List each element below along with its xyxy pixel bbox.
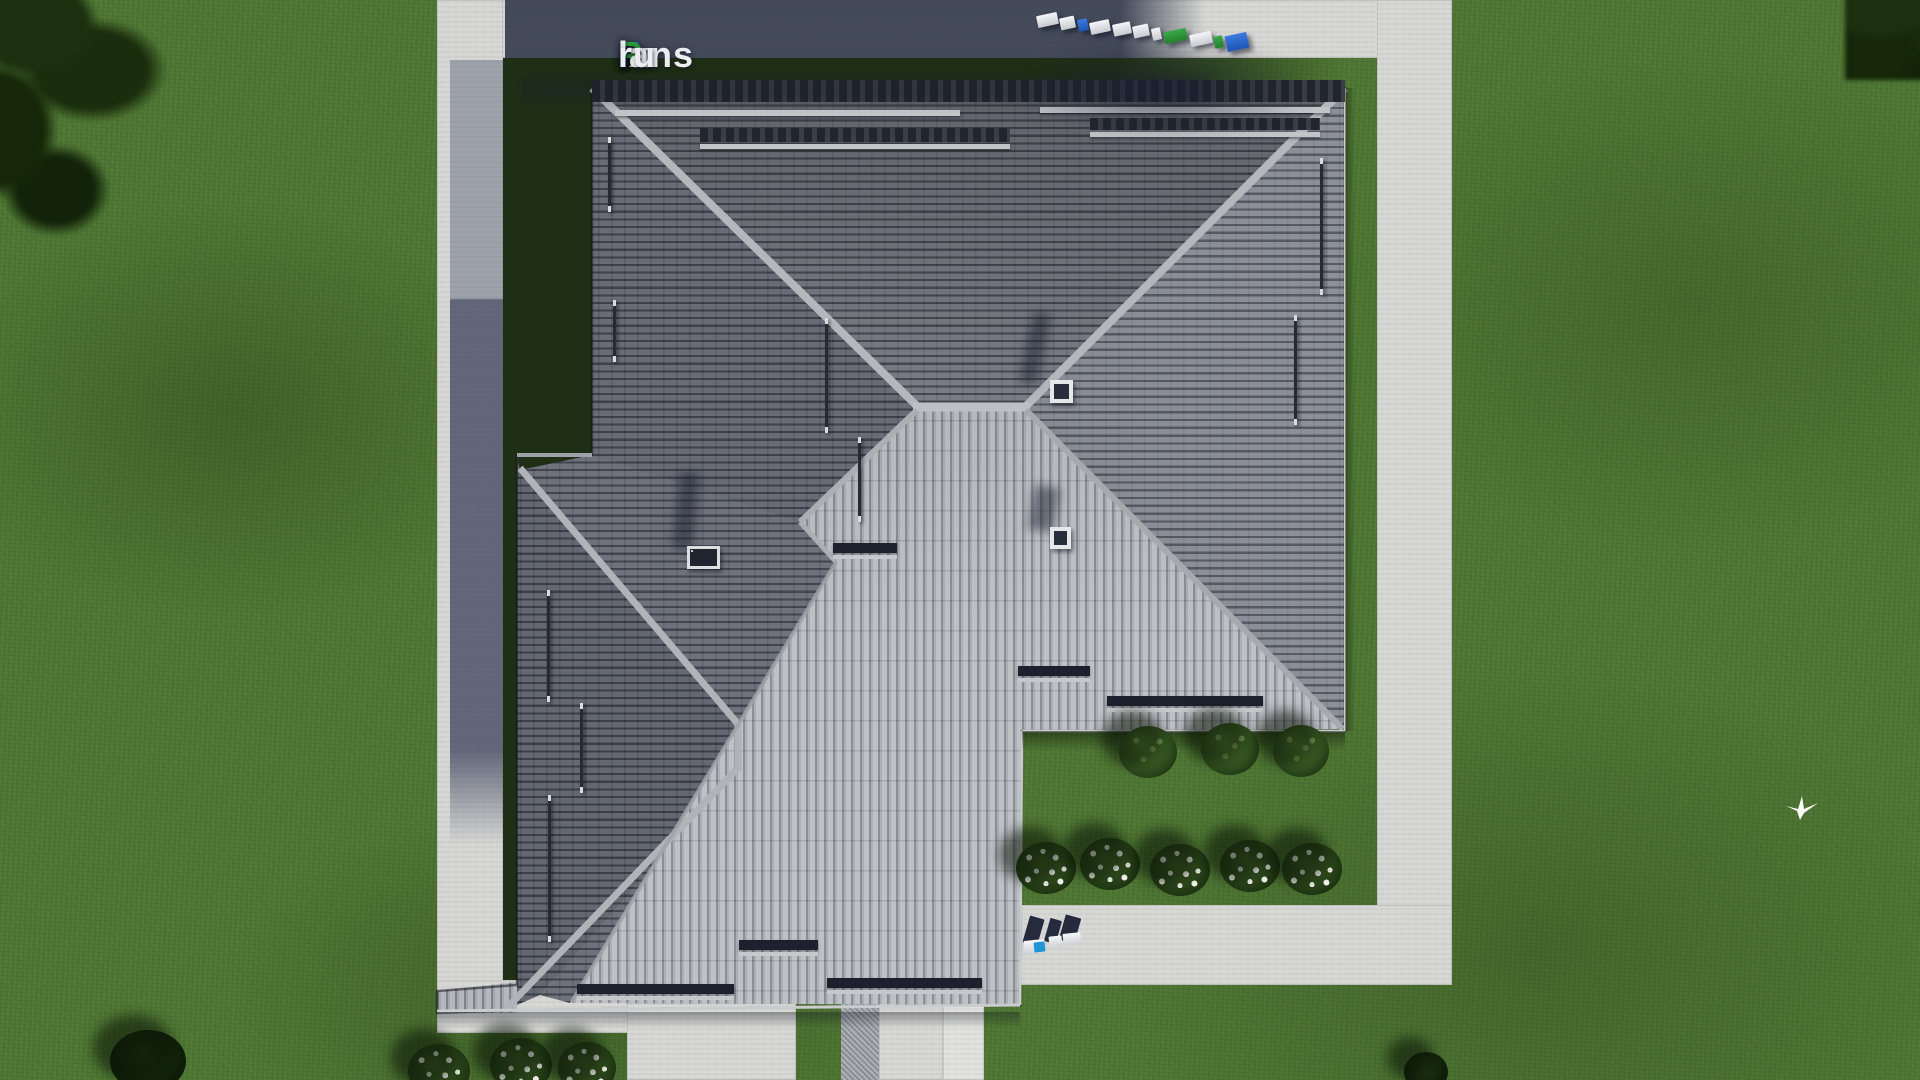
bird — [1786, 796, 1818, 820]
roof-ladder — [1294, 315, 1297, 425]
shrub — [1273, 725, 1329, 777]
tree-canopy — [0, 0, 200, 250]
snow-guard-bar — [1107, 696, 1263, 706]
snow-guard-bar — [1018, 666, 1090, 676]
roof-ridge-lines — [0, 0, 1920, 1080]
roof-window-pair — [687, 546, 720, 569]
flower-bush — [1150, 844, 1210, 896]
snow-guard-bar — [577, 984, 734, 994]
flower-bush — [1080, 838, 1140, 890]
chimney-vent — [1050, 527, 1071, 549]
snow-rail — [615, 110, 960, 116]
eave-contact-shadow — [1345, 88, 1355, 731]
eave-soft-shadow — [520, 76, 1210, 102]
eave-contact-shadow — [437, 1012, 1020, 1028]
tree-canopy — [1845, 0, 1920, 80]
snow-guard-bar — [827, 978, 982, 988]
snow-guard-bar — [700, 128, 1010, 142]
chimney-vent — [1050, 380, 1073, 403]
flower-bush — [1282, 843, 1342, 895]
logo-segment: ru — [618, 34, 656, 76]
roof-ladder — [1320, 158, 1323, 295]
roof-ladder — [548, 795, 551, 942]
roof-ladder — [613, 300, 616, 362]
roof-ladder — [580, 703, 583, 793]
shrub — [1119, 726, 1177, 778]
snow-guard-bar — [833, 543, 897, 553]
shrub — [1201, 723, 1259, 775]
roof-ladder — [858, 437, 861, 522]
roof-ladder — [547, 590, 550, 702]
roof-ladder — [608, 137, 611, 212]
aerial-render-viewport: FixPlans.ru — [0, 0, 1920, 1080]
snow-guard-bar — [739, 940, 818, 950]
snow-rail — [700, 144, 1010, 149]
roof-ladder — [825, 318, 828, 433]
